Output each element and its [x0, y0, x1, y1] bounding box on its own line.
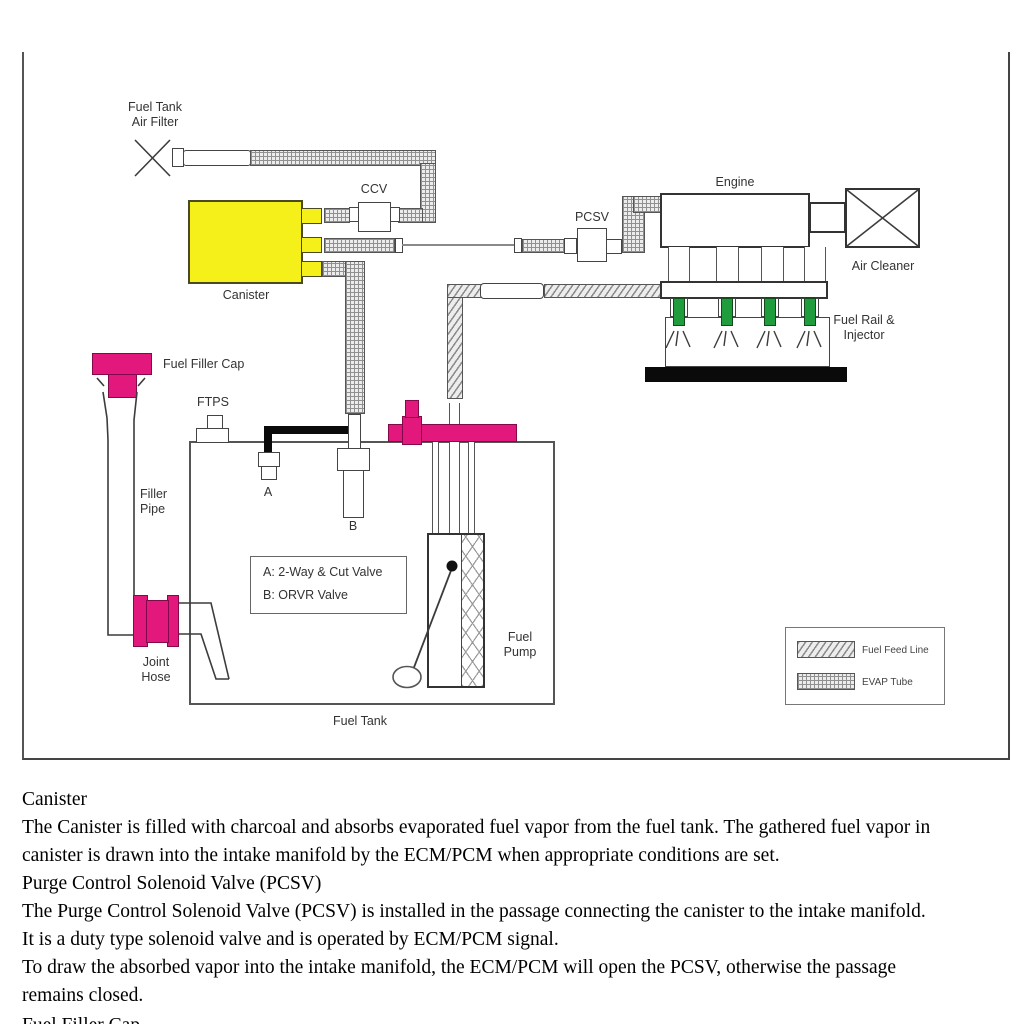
purge-line-pipe	[402, 244, 516, 246]
air-filter-label: Fuel TankAir Filter	[110, 100, 200, 130]
joint-hose-barrel	[146, 600, 169, 643]
injector-2	[721, 298, 733, 326]
fuel-feed-riser	[447, 284, 463, 399]
intake-runner	[668, 247, 690, 282]
fuel-pump-filter-strip	[461, 535, 483, 686]
ftps-label: FTPS	[190, 395, 236, 410]
vent-hose-horizontal	[264, 426, 353, 434]
engine-box	[660, 193, 810, 248]
joint-hose-label: JointHose	[128, 655, 184, 685]
flange-valve-top	[405, 400, 419, 418]
cut-valve-top	[258, 452, 280, 467]
evap-tube-purge-left	[324, 238, 395, 253]
evap-tube-engine-link	[633, 196, 662, 213]
evap-tube-canister-down-link	[322, 261, 346, 277]
air-cleaner-box	[845, 188, 920, 248]
article-heading-pcsv: Purge Control Solenoid Valve (PCSV)	[22, 870, 321, 898]
fuel-rail-injector-label: Fuel Rail &Injector	[824, 313, 904, 343]
fuel-rail	[660, 281, 828, 299]
page: Fuel TankAir Filter CCV PCSV Engine Air …	[0, 0, 1024, 1024]
intake-runner	[716, 247, 739, 282]
air-cleaner-label: Air Cleaner	[843, 259, 923, 274]
cut-valve-body	[261, 466, 277, 480]
injector-1	[673, 298, 685, 326]
pump-tube-2	[468, 441, 475, 534]
article-line: The Canister is filled with charcoal and…	[22, 814, 930, 842]
article-heading-canister: Canister	[22, 786, 87, 814]
fuel-feed-swatch	[797, 641, 855, 658]
evap-tube-swatch	[797, 673, 855, 690]
fuel-pump-label: FuelPump	[492, 630, 548, 660]
article-line: remains closed.	[22, 982, 143, 1010]
air-cleaner-duct	[809, 202, 846, 233]
pcsv-left-port	[564, 238, 577, 254]
article-line: To draw the absorbed vapor into the inta…	[22, 954, 896, 982]
flange-valve-base	[402, 416, 422, 445]
article-heading-fuel-filler-cap-clipped: Fuel Filler Cap	[22, 1012, 140, 1024]
ccv-label: CCV	[352, 182, 396, 197]
air-filter-hose	[183, 150, 251, 166]
ftps-sensor-top	[207, 415, 223, 429]
canister-port-top	[301, 208, 322, 224]
fuel-filter	[480, 283, 544, 299]
orvr-stem	[348, 414, 361, 452]
canister-port-bottom	[301, 261, 322, 277]
engine-label: Engine	[660, 175, 810, 190]
engine-mount-bar	[645, 367, 847, 382]
intake-runner	[804, 247, 826, 282]
legend-box	[785, 627, 945, 705]
fuel-filler-cap-label: Fuel Filler Cap	[163, 357, 244, 372]
canister-port-middle	[301, 237, 322, 253]
ccv-valve	[358, 202, 391, 232]
canister-label: Canister	[210, 288, 282, 303]
orvr-valve-body	[343, 470, 364, 518]
valve-a-label: A	[256, 485, 280, 500]
legend-fuel-feed-label: Fuel Feed Line	[862, 645, 929, 657]
pcsv-valve	[577, 228, 607, 262]
purge-line-fitting-right	[514, 238, 522, 253]
article-line: The Purge Control Solenoid Valve (PCSV) …	[22, 898, 926, 926]
fuel-filler-cap-stem	[108, 374, 137, 398]
evap-tube-pcsv-left	[522, 239, 565, 253]
legend-evap-label: EVAP Tube	[862, 677, 913, 689]
intake-runner	[761, 247, 784, 282]
article-line: canister is drawn into the intake manifo…	[22, 842, 780, 870]
pcsv-right-port	[605, 239, 622, 254]
ccv-right-port	[390, 207, 400, 222]
orvr-valve-top	[337, 448, 370, 471]
pump-tube-1	[432, 441, 439, 534]
evap-tube-top	[250, 150, 436, 166]
evap-tube-ccv-right	[398, 208, 423, 223]
fuel-feed-elbow	[447, 284, 483, 298]
valve-key-line-a: A: 2-Way & Cut Valve	[263, 565, 382, 580]
canister-body	[188, 200, 303, 284]
fuel-filler-cap-top	[92, 353, 152, 375]
valve-b-label: B	[340, 519, 366, 534]
fuel-tank-label: Fuel Tank	[333, 714, 387, 729]
pcsv-label: PCSV	[563, 210, 621, 225]
evap-tube-orvr-riser	[345, 261, 365, 414]
evap-tube-ccv-canister	[324, 208, 350, 223]
fuel-feed-line	[544, 284, 662, 298]
article-line: It is a duty type solenoid valve and is …	[22, 926, 559, 954]
fuel-feed-pickup-tube	[449, 403, 460, 534]
filler-pipe-label: FillerPipe	[140, 487, 167, 517]
injector-3	[764, 298, 776, 326]
injector-4	[804, 298, 816, 326]
ftps-sensor-base	[196, 428, 229, 443]
valve-key-line-b: B: ORVR Valve	[263, 588, 348, 603]
